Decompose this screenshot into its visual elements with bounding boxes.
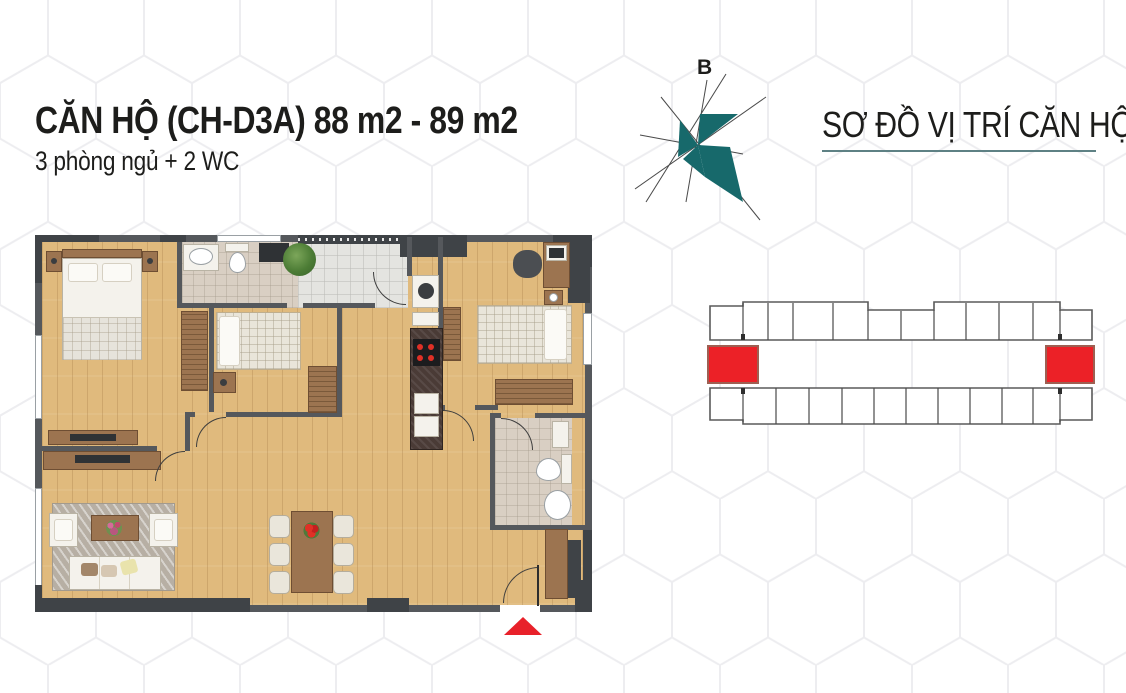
master-headboard [62, 249, 142, 258]
side-table-top [549, 293, 558, 302]
toilet-1-tank [225, 243, 249, 252]
sofa-seam [99, 557, 100, 589]
cabinet-bed2 [308, 366, 337, 413]
wardrobe-master [181, 311, 208, 391]
knob [51, 258, 57, 264]
tv [75, 455, 130, 463]
column [367, 598, 409, 612]
burner [417, 355, 423, 361]
balcony-railing-dashes [298, 238, 400, 241]
location-diagram [706, 298, 1096, 430]
entry-door-leaf [537, 565, 539, 606]
apartment-title: CĂN HỘ (CH-D3A) 88 m2 - 89 m2 [35, 100, 610, 143]
sink-2 [544, 490, 571, 520]
desk-chair [513, 250, 542, 278]
location-heading-underline [822, 150, 1096, 152]
entry-cabinet [545, 529, 568, 599]
dining-chair [333, 543, 354, 566]
pillow [102, 263, 132, 282]
dining-chair [269, 543, 290, 566]
toilet-2 [536, 458, 561, 481]
burner [428, 355, 434, 361]
tv [70, 434, 116, 441]
knob [220, 379, 227, 386]
page: { "header": { "title": "CĂN HỘ (CH-D3A) … [0, 0, 1126, 693]
apartment-subtitle: 3 phòng ngủ + 2 WC [35, 146, 278, 177]
shower-tray [552, 421, 569, 448]
table-flowers [303, 522, 320, 539]
sofa-pillow [101, 565, 117, 577]
column [35, 585, 42, 612]
column [35, 235, 99, 242]
unit-row-top [710, 302, 1092, 340]
column [42, 598, 250, 612]
wall-bed3-bottom-b [475, 405, 498, 410]
entrance-arrow [504, 617, 542, 635]
wall-bath2-top-b [535, 413, 585, 418]
kitchen-sink-unit [414, 416, 439, 437]
highlighted-unit-left [708, 346, 758, 383]
kitchen-sink-unit [414, 393, 439, 414]
column [35, 235, 42, 283]
wall-bath2-left [490, 413, 495, 530]
wall-step [185, 412, 190, 451]
blanket [63, 317, 141, 360]
knob [147, 258, 153, 264]
wardrobe-bed3 [495, 379, 573, 405]
dining-chair [333, 571, 354, 594]
cabinet-bed3 [443, 307, 461, 361]
location-heading: SƠ ĐỒ VỊ TRÍ CĂN HỘ [822, 104, 1126, 146]
column [568, 540, 581, 598]
dining-chair [269, 571, 290, 594]
stove [413, 339, 440, 366]
column [568, 237, 590, 303]
toilet-2-tank [561, 454, 572, 484]
compass-icon [630, 52, 795, 232]
wall-bed2-bottom-a [190, 412, 195, 417]
flower-vase [105, 520, 123, 536]
toilet-1 [229, 252, 246, 273]
column [160, 235, 186, 242]
armchair-cushion [154, 519, 173, 541]
sink-1 [189, 248, 213, 265]
washer-drum [418, 283, 434, 299]
pillow [219, 316, 240, 366]
unit-row-bottom [710, 388, 1092, 424]
sofa-pillow [81, 563, 98, 576]
window-master-bedroom [35, 335, 42, 419]
burner [428, 344, 434, 350]
wall-balcony-right [407, 237, 412, 276]
entry-opening [500, 605, 540, 612]
plant [283, 243, 316, 276]
compass-north-label: B [697, 56, 712, 80]
pillow [544, 309, 567, 360]
dining-chair [269, 515, 290, 538]
window-bedroom-2 [217, 235, 281, 242]
wall-bed2-kitchen [337, 308, 342, 412]
wall-master-bed2 [209, 308, 214, 412]
kitchen-shelf [412, 312, 439, 326]
dining-chair [333, 515, 354, 538]
wall-master-bath1 [177, 242, 182, 308]
armchair-cushion [54, 519, 73, 541]
window-bedroom-3 [583, 313, 592, 365]
laptop-screen [549, 248, 564, 258]
wall-bath2-bottom [490, 525, 585, 530]
floor-plan [35, 235, 592, 612]
highlighted-unit-right [1046, 346, 1094, 383]
window-living-room [35, 488, 42, 588]
burner [417, 344, 423, 350]
wall-under-bath1 [177, 303, 287, 308]
pillow [68, 263, 98, 282]
